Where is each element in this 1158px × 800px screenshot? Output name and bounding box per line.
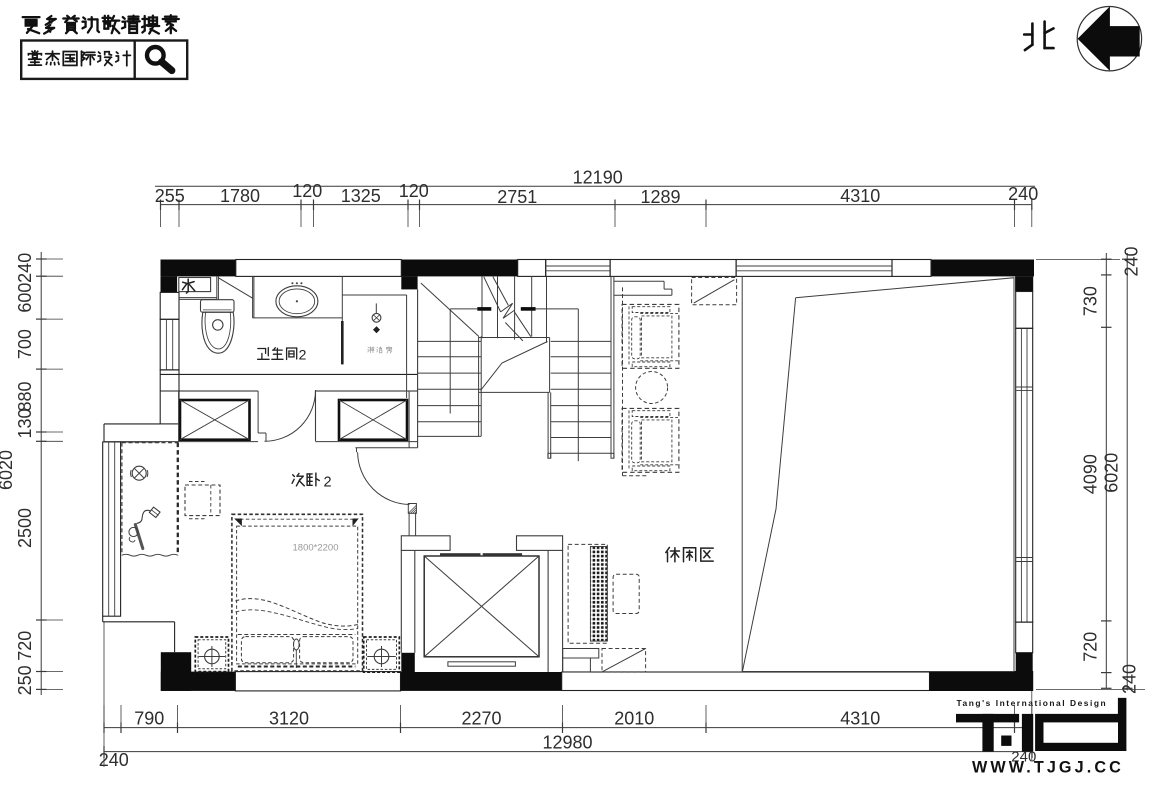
svg-text:720: 720 bbox=[1081, 632, 1101, 662]
svg-text:12980: 12980 bbox=[542, 733, 592, 753]
svg-text:6020: 6020 bbox=[0, 450, 16, 490]
svg-text:2270: 2270 bbox=[461, 709, 501, 729]
svg-text:4310: 4310 bbox=[840, 186, 880, 206]
svg-text:2751: 2751 bbox=[497, 187, 537, 207]
svg-text:120: 120 bbox=[399, 181, 429, 201]
svg-text:1780: 1780 bbox=[220, 186, 260, 206]
svg-text:4090: 4090 bbox=[1081, 454, 1101, 494]
svg-text:130: 130 bbox=[15, 408, 35, 438]
svg-text:1800*2200: 1800*2200 bbox=[293, 543, 339, 554]
svg-text:720: 720 bbox=[15, 631, 35, 661]
svg-text:3120: 3120 bbox=[269, 709, 309, 729]
svg-text:240: 240 bbox=[1122, 246, 1142, 276]
svg-text:120: 120 bbox=[292, 181, 322, 201]
svg-text:700: 700 bbox=[15, 329, 35, 359]
svg-text:2: 2 bbox=[323, 475, 331, 491]
svg-text:250: 250 bbox=[15, 665, 35, 695]
svg-text:1325: 1325 bbox=[341, 186, 381, 206]
svg-text:600: 600 bbox=[15, 283, 35, 313]
svg-text:Tang's International Design: Tang's International Design bbox=[957, 698, 1108, 708]
svg-text:2010: 2010 bbox=[614, 709, 654, 729]
svg-text:730: 730 bbox=[1081, 286, 1101, 316]
svg-text:2: 2 bbox=[299, 347, 307, 363]
svg-text:240: 240 bbox=[99, 750, 129, 770]
svg-text:6020: 6020 bbox=[1102, 453, 1122, 493]
svg-text:880: 880 bbox=[15, 381, 35, 411]
svg-text:790: 790 bbox=[134, 709, 164, 729]
svg-text:12190: 12190 bbox=[573, 168, 623, 188]
svg-text:1289: 1289 bbox=[640, 187, 680, 207]
svg-text:2500: 2500 bbox=[15, 508, 35, 548]
svg-text:240: 240 bbox=[1008, 184, 1038, 204]
svg-text:WWW.TJGJ.CC: WWW.TJGJ.CC bbox=[972, 759, 1124, 777]
svg-text:4310: 4310 bbox=[840, 709, 880, 729]
svg-text:255: 255 bbox=[155, 186, 185, 206]
svg-text:240: 240 bbox=[15, 253, 35, 283]
